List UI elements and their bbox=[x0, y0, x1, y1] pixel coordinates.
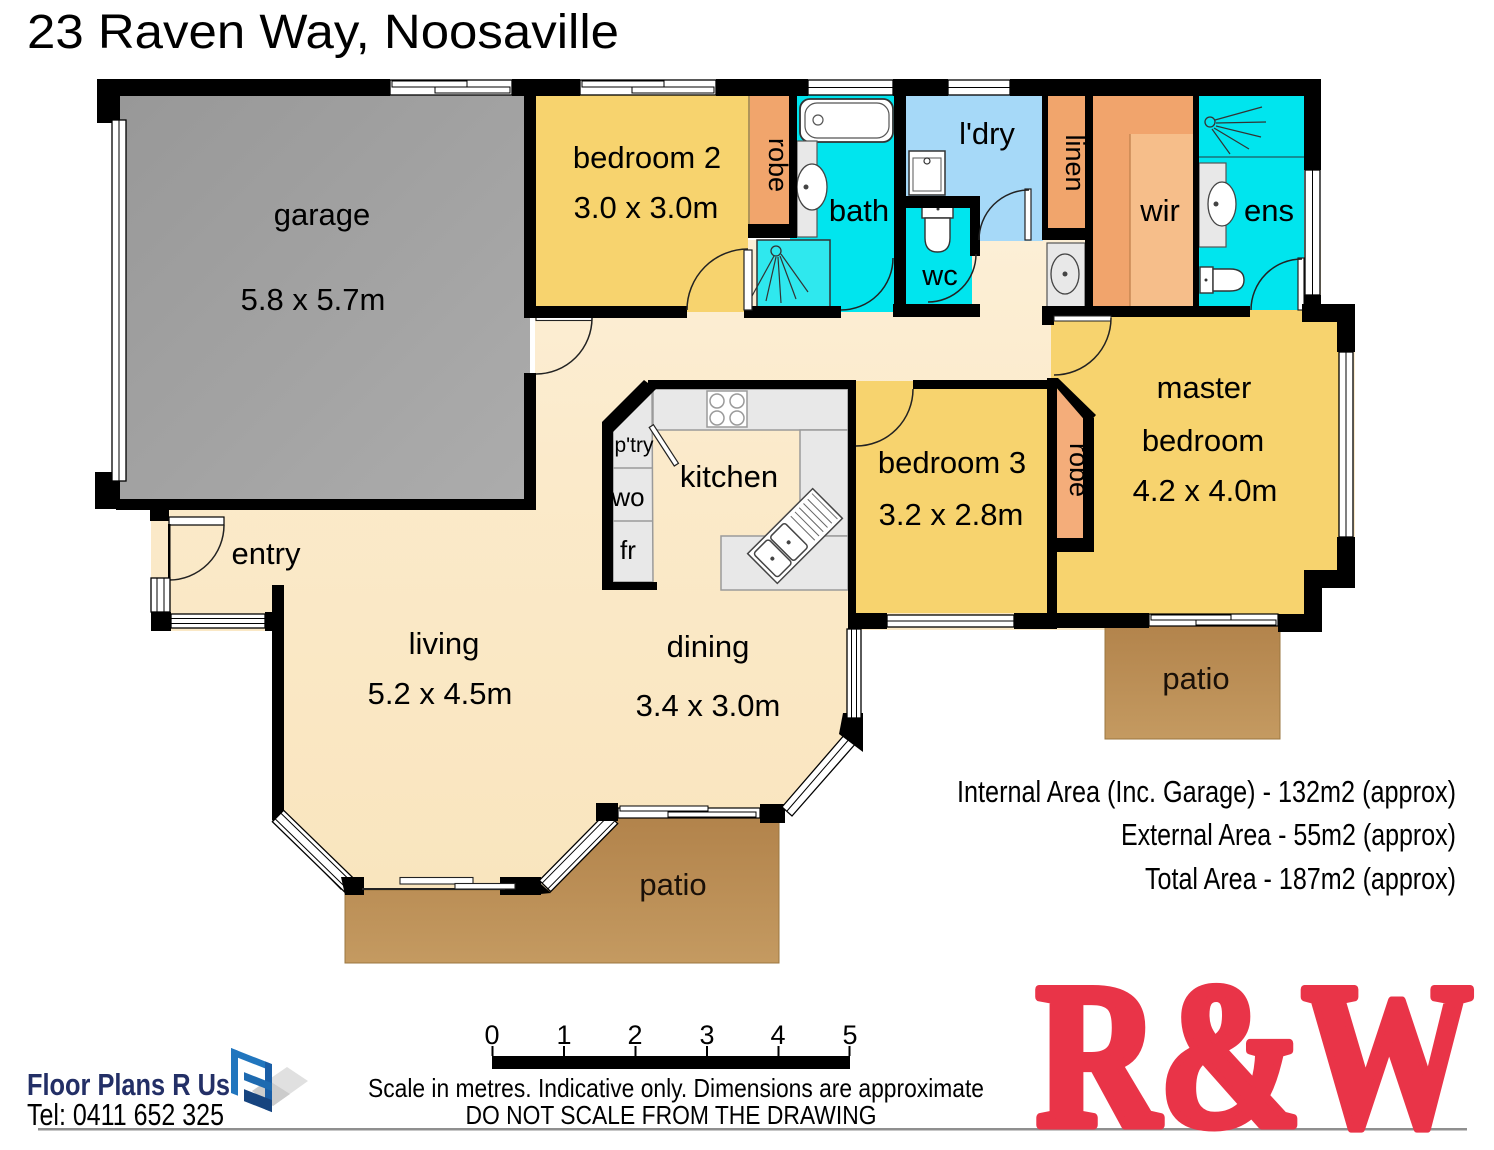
svg-text:garage: garage bbox=[274, 197, 371, 232]
svg-text:3: 3 bbox=[699, 1020, 714, 1050]
svg-text:Total Area - 187m2 (approx): Total Area - 187m2 (approx) bbox=[1145, 861, 1456, 896]
svg-text:p'try: p'try bbox=[614, 434, 654, 457]
svg-text:Scale in metres. Indicative on: Scale in metres. Indicative only. Dimens… bbox=[368, 1073, 984, 1103]
svg-text:4.2 x 4.0m: 4.2 x 4.0m bbox=[1133, 473, 1278, 508]
svg-text:master: master bbox=[1157, 370, 1252, 405]
svg-text:0: 0 bbox=[484, 1020, 499, 1050]
svg-text:robe: robe bbox=[763, 138, 793, 192]
svg-text:5.2 x 4.5m: 5.2 x 4.5m bbox=[368, 676, 513, 711]
svg-text:entry: entry bbox=[232, 536, 301, 571]
svg-text:wc: wc bbox=[921, 260, 957, 292]
svg-text:dining: dining bbox=[667, 629, 750, 664]
svg-text:R&W: R&W bbox=[1036, 941, 1473, 1150]
svg-text:living: living bbox=[409, 626, 480, 661]
svg-text:bedroom 2: bedroom 2 bbox=[573, 140, 721, 175]
svg-text:ens: ens bbox=[1244, 193, 1294, 228]
svg-text:1: 1 bbox=[556, 1020, 571, 1050]
svg-text:DO NOT SCALE FROM THE DRAWING: DO NOT SCALE FROM THE DRAWING bbox=[466, 1100, 877, 1130]
svg-text:3.4 x 3.0m: 3.4 x 3.0m bbox=[636, 688, 781, 723]
svg-text:bath: bath bbox=[829, 193, 889, 228]
svg-text:bedroom: bedroom bbox=[1142, 423, 1264, 458]
svg-text:2: 2 bbox=[627, 1020, 642, 1050]
svg-text:Tel: 0411 652 325: Tel: 0411 652 325 bbox=[27, 1097, 224, 1132]
svg-text:wir: wir bbox=[1139, 193, 1180, 228]
svg-text:3.2 x 2.8m: 3.2 x 2.8m bbox=[879, 497, 1024, 532]
svg-text:5: 5 bbox=[842, 1020, 857, 1050]
svg-text:bedroom 3: bedroom 3 bbox=[878, 445, 1026, 480]
svg-text:l'dry: l'dry bbox=[959, 116, 1015, 151]
svg-text:23 Raven Way, Noosaville: 23 Raven Way, Noosaville bbox=[27, 6, 619, 59]
svg-text:3.0 x 3.0m: 3.0 x 3.0m bbox=[574, 190, 719, 225]
svg-text:4: 4 bbox=[770, 1020, 785, 1050]
svg-text:5.8 x 5.7m: 5.8 x 5.7m bbox=[241, 282, 386, 317]
svg-text:fr: fr bbox=[620, 535, 636, 565]
svg-text:Internal Area (Inc. Garage) -: Internal Area (Inc. Garage) - 132m2 (app… bbox=[957, 774, 1456, 809]
svg-text:patio: patio bbox=[639, 867, 706, 902]
svg-text:kitchen: kitchen bbox=[680, 459, 778, 494]
svg-text:External Area - 55m2 (approx): External Area - 55m2 (approx) bbox=[1121, 817, 1456, 852]
svg-text:wo: wo bbox=[610, 482, 644, 512]
svg-text:patio: patio bbox=[1162, 661, 1229, 696]
